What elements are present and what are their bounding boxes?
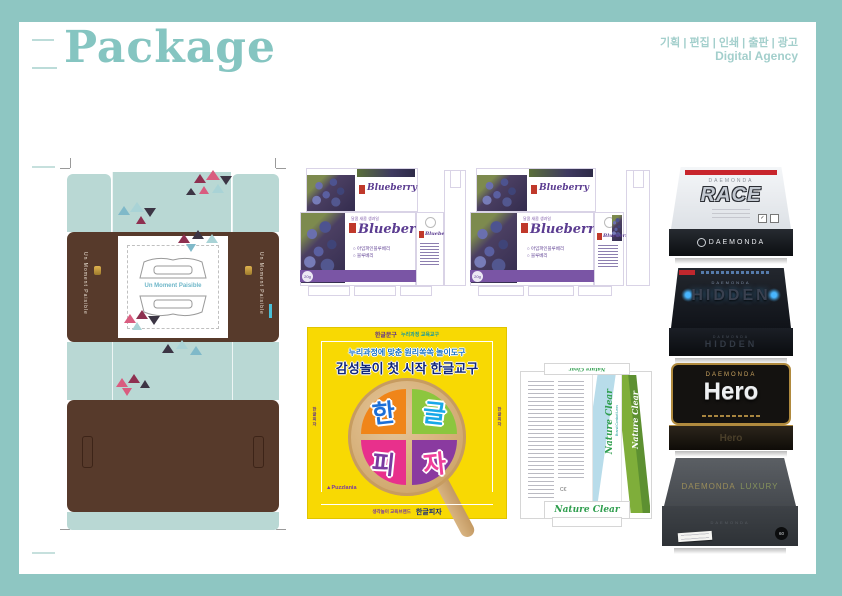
moment-paisible-dieline: Un Moment Paisible Un Moment Paisible Un… — [66, 164, 280, 536]
center-brand: Un Moment Paisible — [118, 283, 228, 289]
top-flap-title: Nature Clear — [569, 366, 605, 372]
title-mark-icon — [32, 67, 57, 69]
panel-brown — [67, 400, 279, 512]
bottom-band: 생각놀이 교육브랜드 한글피자 — [321, 504, 493, 518]
hangul-pizza-box: 한글문구 누리과정 교육교구 한글피자 한글피자 누리과정에 맞춘 원리쏙쏙 놀… — [307, 327, 507, 519]
frame-right — [816, 22, 842, 596]
title: Hero — [673, 378, 789, 406]
race-top-face: DAEMONDA RACE ✓ — [671, 167, 791, 229]
weight-badge: 20g — [302, 271, 313, 282]
portfolio-page: Package 기획 | 편집 | 인쇄 | 출판 | 광고 Digital A… — [0, 0, 842, 596]
hidden-box: DAEMONDA HIDDEN DAEMONDA HIDDEN — [669, 268, 795, 364]
hero-front-face: Hero — [669, 425, 793, 450]
pizza-slice-2: 글 — [412, 389, 457, 434]
blueberry-dieline-2: Blueberry 달콤 새콤 생과일 Blueberry ○ 아임파인블루베리… — [470, 166, 652, 296]
brand: DAEMONDA — [671, 280, 791, 285]
panel-green: Nature Clear — [621, 375, 650, 513]
bottom-title: Nature Clear — [554, 505, 619, 515]
pizza-slice-4: 자 — [412, 440, 457, 485]
nature-clear-dieline: Nature Clear C€ Nature Clear Brand Conta… — [520, 363, 652, 527]
side-brand-text: Un Moment Paisible — [258, 252, 264, 315]
legal-text-lines — [558, 381, 584, 481]
hidden-top-face: DAEMONDA HIDDEN — [671, 268, 791, 328]
bottle-outline — [444, 170, 466, 286]
race-box: DAEMONDA RACE ✓ DAEMONDA — [669, 167, 795, 267]
lens-subtitle: Brand Contact Lens — [615, 405, 619, 436]
services-line: 기획 | 편집 | 인쇄 | 출판 | 광고 — [660, 34, 798, 50]
panel-blue: Nature Clear Brand Contact Lens — [592, 375, 621, 513]
title: LUXURY — [740, 482, 778, 491]
blueberry-dieline-1: Blueberry 달콤 새콤 생과일 Blueberry ○ 아임파인블루베리… — [300, 166, 468, 296]
luxury-top-face: DAEMONDA LUXURY — [664, 458, 796, 506]
side-tab: Blueberry — [594, 212, 624, 286]
puzzlania-logo: ▲Puzzlania — [326, 485, 357, 491]
printer-mark — [269, 304, 272, 318]
sticker-label — [678, 531, 713, 542]
frame-top — [0, 0, 842, 22]
frame-bottom — [19, 574, 816, 596]
legal-text-lines — [528, 381, 554, 499]
luxury-front-face: DAEMONDA 60 — [662, 506, 798, 546]
pizza-paddle: 한 글 피 자 — [348, 378, 468, 498]
flap — [67, 512, 279, 530]
bullet-1: ○ 아임파인블루베리 — [353, 245, 390, 252]
luxury-box: DAEMONDA LUXURY DAEMONDA 60 — [662, 458, 800, 552]
title: RACE — [671, 184, 791, 207]
brand: DAEMONDA — [682, 482, 736, 491]
side-brand-text: Un Moment Paisible — [82, 252, 88, 315]
title-mark-icon — [32, 39, 54, 41]
hidden-front-face: DAEMONDA HIDDEN — [669, 328, 793, 356]
flap — [232, 174, 279, 232]
flap — [67, 174, 111, 232]
headline: 감성놀이 첫 시작 한글교구 — [308, 358, 506, 377]
title: HIDDEN — [671, 287, 791, 305]
blueberry-script: Blueberry — [367, 183, 417, 193]
top-note: 누리과정 교육교구 — [401, 331, 439, 338]
pizza-slice-3: 피 — [361, 440, 406, 485]
top-brand: 한글문구 — [375, 330, 397, 339]
top-flap: Blueberry — [476, 168, 596, 212]
side-tab: Blueberry — [416, 212, 444, 286]
subtitle: 누리과정에 맞춘 원리쏙쏙 놀이도구 — [308, 347, 506, 358]
ce-mark: C€ — [560, 487, 566, 493]
gold-logo-icon — [94, 266, 101, 275]
agency-line: Digital Agency — [715, 49, 798, 63]
top-flap: Blueberry — [306, 168, 418, 212]
race-front-face: DAEMONDA — [669, 229, 793, 256]
frame-left — [0, 22, 19, 596]
hero-top-face: DAEMONDA Hero — [671, 363, 791, 425]
bottle-outline — [626, 170, 650, 286]
daemonda-logo-icon — [697, 238, 706, 247]
gold-logo-icon — [245, 266, 252, 275]
hero-box: DAEMONDA Hero Hero — [669, 363, 795, 457]
round-badge: 60 — [775, 527, 788, 540]
margin-dash — [32, 166, 55, 168]
page-title: Package — [64, 22, 276, 73]
bullet-2: ○ 블루베리 — [353, 252, 390, 259]
pizza-slice-1: 한 — [361, 389, 406, 434]
margin-dash — [32, 552, 55, 554]
